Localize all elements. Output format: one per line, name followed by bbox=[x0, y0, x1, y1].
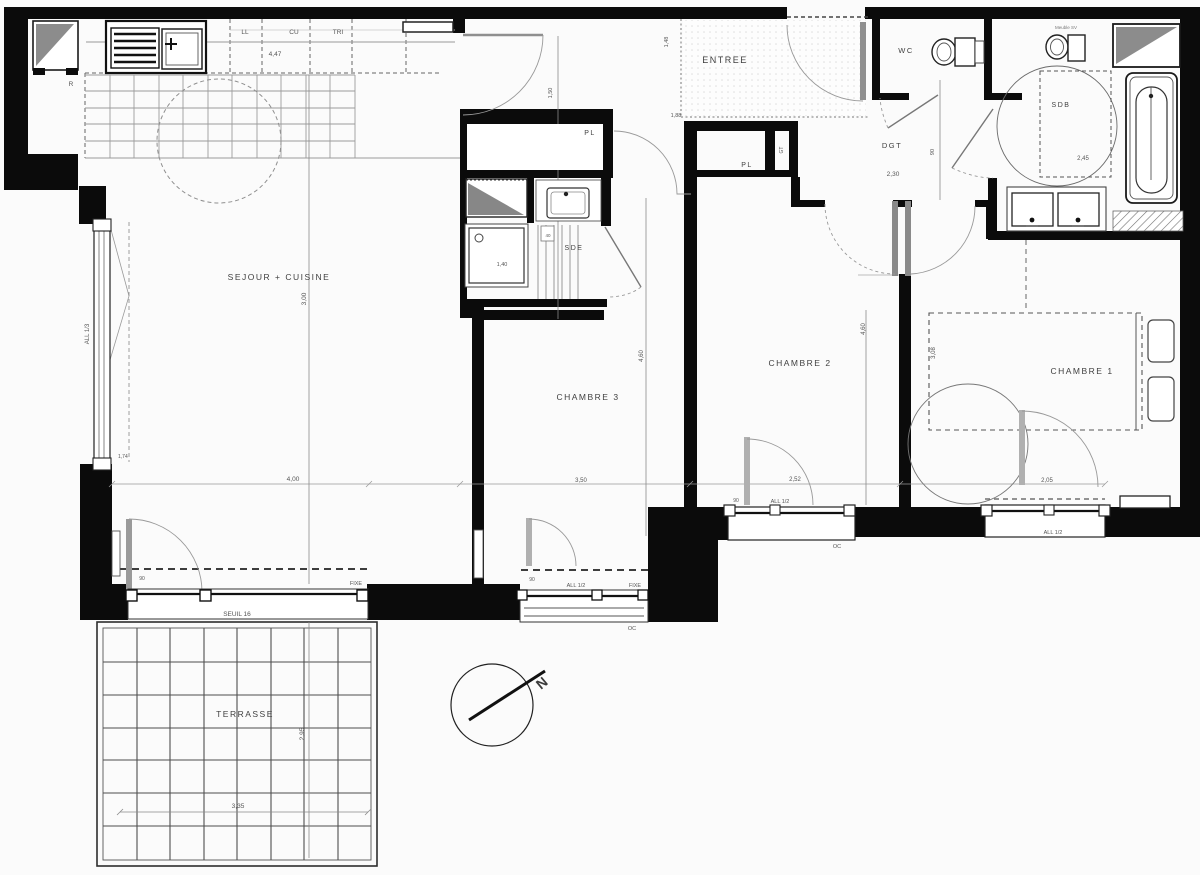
svg-text:R: R bbox=[69, 81, 74, 88]
svg-text:4,60: 4,60 bbox=[639, 350, 645, 362]
svg-text:SDB: SDB bbox=[1052, 102, 1071, 109]
svg-text:3,50: 3,50 bbox=[575, 478, 587, 484]
svg-text:4,00: 4,00 bbox=[287, 476, 300, 483]
svg-text:ENTREE: ENTREE bbox=[702, 55, 748, 65]
svg-text:3,00: 3,00 bbox=[301, 292, 308, 305]
svg-text:ALL 1/2: ALL 1/2 bbox=[771, 499, 790, 505]
svg-text:2,05: 2,05 bbox=[1041, 478, 1053, 484]
svg-text:1,50: 1,50 bbox=[548, 88, 554, 99]
svg-text:CHAMBRE 1: CHAMBRE 1 bbox=[1050, 366, 1113, 376]
svg-text:FIXE: FIXE bbox=[629, 583, 642, 589]
svg-text:90: 90 bbox=[733, 498, 739, 504]
svg-text:40: 40 bbox=[545, 233, 551, 238]
svg-text:2,52: 2,52 bbox=[789, 477, 801, 483]
svg-text:1,74: 1,74 bbox=[118, 454, 128, 460]
svg-text:OC: OC bbox=[833, 544, 841, 550]
svg-text:CHAMBRE 2: CHAMBRE 2 bbox=[768, 358, 831, 368]
svg-text:SEJOUR + CUISINE: SEJOUR + CUISINE bbox=[228, 272, 331, 282]
svg-text:1,88: 1,88 bbox=[671, 113, 682, 119]
svg-text:PL: PL bbox=[584, 130, 596, 137]
svg-text:3,35: 3,35 bbox=[232, 803, 245, 810]
svg-text:ALL 1/3: ALL 1/3 bbox=[85, 323, 91, 344]
svg-text:LL: LL bbox=[241, 29, 249, 36]
svg-text:WC: WC bbox=[898, 46, 914, 55]
svg-text:OC: OC bbox=[628, 626, 636, 632]
svg-text:SDE: SDE bbox=[565, 245, 584, 252]
svg-text:ALL 1/2: ALL 1/2 bbox=[1044, 530, 1063, 536]
svg-text:FIXE: FIXE bbox=[350, 581, 363, 587]
svg-text:Meuble SV: Meuble SV bbox=[1055, 25, 1077, 30]
svg-text:4,60: 4,60 bbox=[861, 323, 867, 335]
svg-text:90: 90 bbox=[139, 576, 145, 582]
svg-text:2,95: 2,95 bbox=[299, 727, 306, 740]
svg-text:2,30: 2,30 bbox=[887, 171, 900, 178]
svg-text:PL: PL bbox=[741, 162, 753, 169]
svg-text:CHAMBRE 3: CHAMBRE 3 bbox=[556, 392, 619, 402]
svg-text:ALL 1/2: ALL 1/2 bbox=[567, 583, 586, 589]
svg-text:DGT: DGT bbox=[882, 141, 902, 150]
svg-text:GT: GT bbox=[779, 147, 785, 154]
svg-text:4,47: 4,47 bbox=[269, 51, 282, 58]
svg-text:90: 90 bbox=[930, 149, 936, 155]
svg-text:SEUIL 16: SEUIL 16 bbox=[223, 611, 251, 618]
svg-text:1,40: 1,40 bbox=[497, 262, 508, 268]
svg-text:2,45: 2,45 bbox=[1077, 156, 1089, 162]
svg-text:1,48: 1,48 bbox=[664, 37, 670, 48]
svg-text:TRI: TRI bbox=[333, 29, 344, 36]
svg-text:CU: CU bbox=[289, 29, 299, 36]
svg-text:TERRASSE: TERRASSE bbox=[216, 709, 274, 719]
svg-text:90: 90 bbox=[529, 577, 535, 583]
svg-text:3,08: 3,08 bbox=[931, 347, 937, 359]
